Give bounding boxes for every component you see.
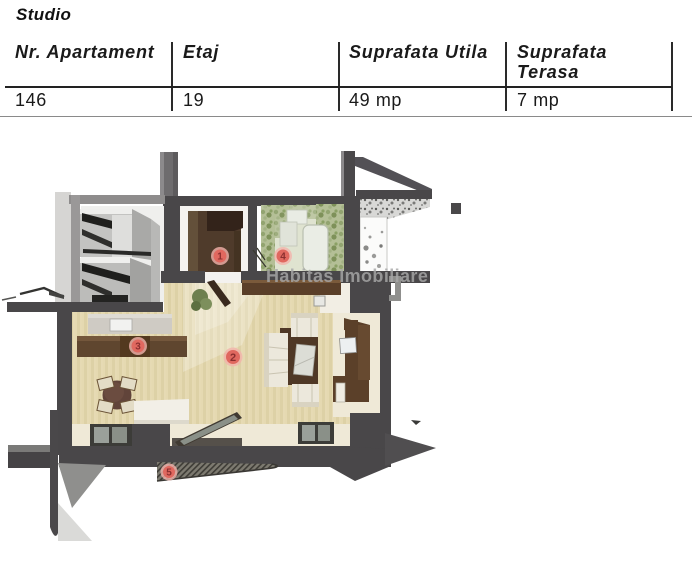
svg-text:5: 5 [166, 468, 172, 479]
svg-text:2: 2 [230, 352, 236, 364]
svg-text:Habitas Imobiliare: Habitas Imobiliare [266, 266, 428, 286]
svg-text:1: 1 [217, 252, 223, 263]
svg-text:3: 3 [135, 342, 141, 353]
svg-text:4: 4 [280, 252, 286, 263]
